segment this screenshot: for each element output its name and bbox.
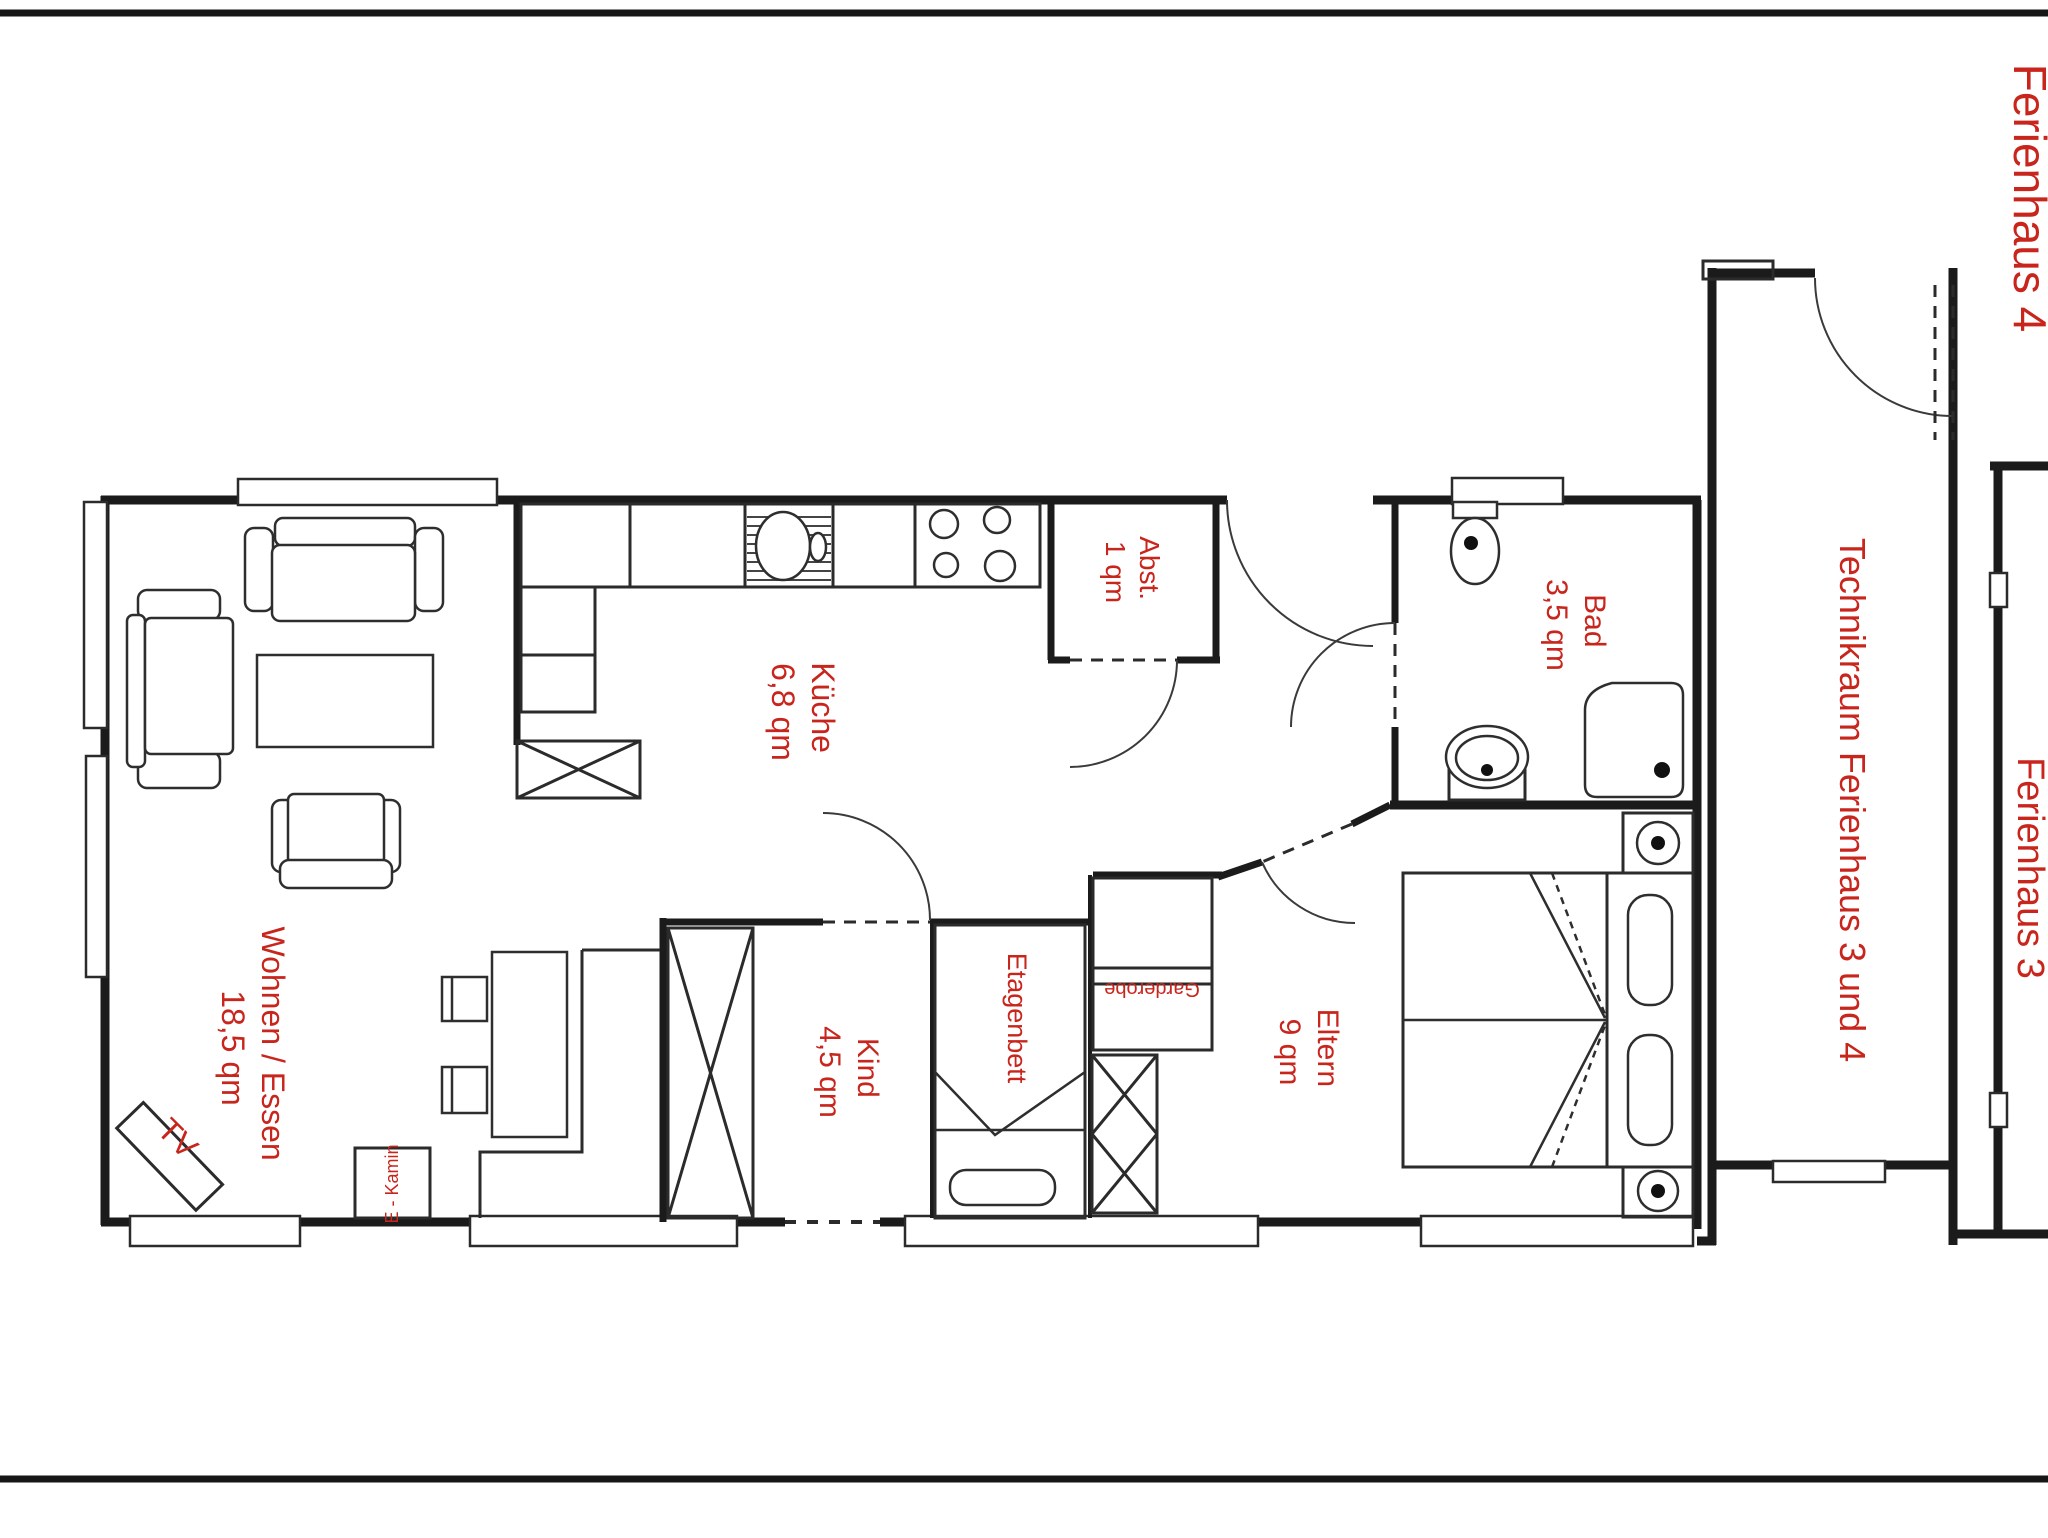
floorplan-drawing: Ferienhaus 4 Wohnen / Essen 18,5 qm Küch…	[0, 0, 2048, 1538]
kitchen-appliance-x	[517, 741, 640, 798]
floorplan-page: Ferienhaus 4 Wohnen / Essen 18,5 qm Küch…	[0, 0, 2048, 1538]
sofa-top	[245, 518, 443, 621]
kind-wardrobe-x	[668, 928, 753, 1218]
window-fh3-upper	[1990, 573, 2007, 607]
pillow-1	[1628, 895, 1672, 1005]
eltern-furniture	[1403, 813, 1693, 1217]
dining-table	[492, 952, 567, 1137]
bad-door-arc	[1291, 623, 1395, 727]
room-label-wohnen: Wohnen / Essen 18,5 qm	[215, 926, 291, 1169]
dining-chair-2	[442, 1067, 487, 1113]
dining-set	[442, 952, 567, 1137]
kind-room-furniture	[668, 878, 1212, 1218]
toilet	[1451, 502, 1499, 584]
window-bottom-1	[130, 1216, 300, 1246]
window-left-upper	[84, 502, 107, 728]
room-label-kind: Kind 4,5 qm	[813, 1026, 884, 1118]
technikraum-walls	[1703, 261, 1953, 1245]
technikraum-door-arc	[1815, 278, 1953, 416]
window-technikraum	[1773, 1161, 1885, 1182]
stove-burner-2	[984, 507, 1010, 533]
washbasin	[1446, 726, 1528, 800]
room-label-abst: Abst. 1 qm	[1100, 536, 1165, 608]
garderobe-closet	[1093, 878, 1212, 1050]
stove-burner-1	[930, 510, 958, 538]
room-label-eltern: Eltern 9 qm	[1273, 1009, 1344, 1096]
stove-burner-4	[985, 551, 1015, 581]
pillow-2	[1628, 1035, 1672, 1145]
room-label-bad: Bad 3,5 qm	[1540, 579, 1611, 671]
stove-burner-3	[934, 553, 958, 577]
nightstand-bottom	[1623, 1167, 1693, 1217]
nightstand-top	[1623, 813, 1693, 873]
room-label-kueche: Küche 6,8 qm	[765, 662, 841, 762]
dining-chair-1	[442, 977, 487, 1021]
shower	[1585, 683, 1683, 797]
kind-door-arc	[823, 813, 930, 920]
label-kamin: E - Kamin	[382, 1144, 402, 1223]
room-label-technikraum: Technikraum Ferienhaus 3 und 4	[1832, 538, 1873, 1062]
eltern-door-leaf	[1262, 824, 1352, 862]
eltern-door-arc	[1262, 862, 1355, 923]
armchair	[272, 794, 400, 888]
label-garderobe: Garderobe	[1104, 978, 1200, 1000]
window-bottom-eltern	[1421, 1216, 1693, 1246]
window-top-bad	[1452, 478, 1563, 504]
hall-cabinet-crosshatch	[1092, 1055, 1157, 1213]
window-bottom-2	[470, 1216, 737, 1246]
kitchen-tap	[810, 533, 826, 561]
kitchen-sink	[756, 512, 810, 580]
abst-door-arc	[1070, 660, 1177, 767]
room-label-ferienhaus3: Ferienhaus 3	[2009, 757, 2048, 979]
window-bottom-3	[905, 1216, 1258, 1246]
coffee-table	[257, 655, 433, 747]
title-ferienhaus-4: Ferienhaus 4	[2004, 64, 2048, 333]
window-fh3-lower	[1990, 1093, 2007, 1127]
window-top-living	[238, 479, 497, 505]
kitchen-tall-cabinet	[521, 587, 595, 712]
living-room-furniture	[117, 518, 567, 1218]
sofa-left	[127, 590, 233, 788]
entrance-door-arc	[1227, 500, 1373, 646]
window-left-lower	[86, 756, 107, 977]
label-etagenbett: Etagenbett	[1002, 953, 1032, 1084]
